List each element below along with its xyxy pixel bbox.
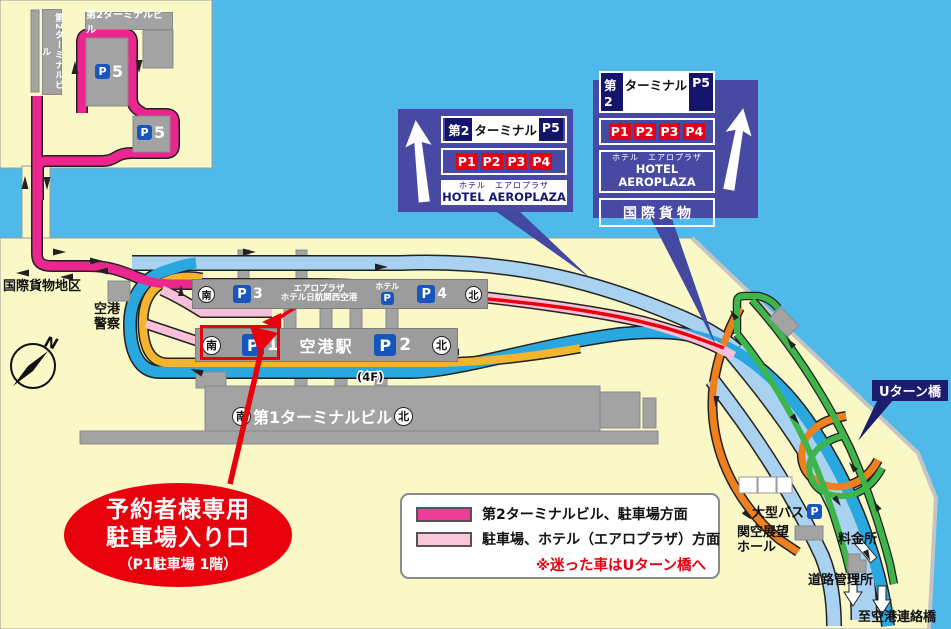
north-badge: 北 [432,336,451,355]
p4-number: 4 [437,286,447,302]
sign-p2: P2 [634,123,656,140]
p-icon: P [417,285,435,303]
floor-4f-label: (4F) [357,370,383,384]
airport-access-map: N (4F) 第2ターミナルビル 第2ターミナルビル P 5 P 5 第2 ター… [0,0,951,629]
p-icon: P [374,334,396,356]
legend-label-terminal2: 第2ターミナルビル、駐車場方面 [482,504,688,524]
sign-row-parkings: P1 P2 P3 P4 [441,148,567,175]
p5-upper-badge: P 5 [95,62,123,81]
reserved-line3: （P1駐車場 1階） [119,554,238,574]
airport-station-label: 空港駅 [299,333,353,357]
sign-row-parkings: P1 P2 P3 P4 [599,118,715,145]
sign-dai2: 第2 [601,73,623,111]
viewing-hall-building [795,526,823,540]
terminal2-bar [31,10,39,92]
sign-p4: P4 [683,123,705,140]
sign-p5: P5 [539,118,563,141]
sign-p2: P2 [481,153,503,170]
large-bus-label-row: 大型バス P [752,502,822,521]
sign-hotel-aeroplaza: ホテル エアロプラザ HOTEL AEROPLAZA [599,150,715,192]
toll-gate-label: 料金所 [838,533,877,548]
sign-p1: P1 [456,153,478,170]
p2-number: 2 [399,335,411,355]
to-access-bridge-label: 至空港連絡橋 [858,611,936,626]
south-badge: 南 [198,286,215,303]
airport-police-building [108,281,130,301]
terminal2-building-label: 第2ターミナルビル [85,12,173,30]
p1-entrance-highlight [200,325,280,360]
uturn-bridge-label: Uターン橋 [872,380,948,401]
terminal2-vertical-label: 第2ターミナルビル [42,9,62,95]
sign-terminal: ターミナル [472,118,539,141]
sign-hotel-en: HOTEL AEROPLAZA [602,163,712,188]
sign-p3: P3 [659,123,681,140]
reserved-parking-callout: 予約者様専用 駐車場入り口 （P1駐車場 1階） [64,483,292,587]
up-arrow-icon [712,97,761,201]
viewing-hall-line1: 関空展望 [737,526,789,541]
legend-swatch-magenta [416,507,472,522]
viewing-hall-line2: ホール [737,541,789,556]
reserved-line1: 予約者様専用 [106,496,250,524]
terminal1-wing [80,431,658,444]
intl-cargo-area-label: 国際貨物地区 [3,280,81,295]
airport-police-label: 空港 警察 [94,303,120,333]
reserved-line2: 駐車場入り口 [106,524,250,552]
sign-cargo-direction: 第2 ターミナル P5 P1 P2 P3 P4 ホテル エアロプラザ HOTEL… [593,80,758,218]
sign-terminal: ターミナル [623,73,690,111]
sign-p3: P3 [506,153,528,170]
north-badge: 北 [394,407,413,426]
p5-number: 5 [112,62,123,81]
sign-terminal-parking: 第2 ターミナル P5 P1 P2 P3 P4 ホテル エアロプラザ HOTEL… [398,109,573,212]
up-arrow-icon [400,116,441,205]
legend-item-parking-hotel: 駐車場、ホテル（エアロプラザ）方面 [416,529,706,549]
p-icon: P [233,285,251,303]
viewing-hall-label: 関空展望 ホール [737,526,789,556]
hotel-nikko-label: ホテル日航関西空港 [281,294,358,303]
sign-p5: P5 [689,73,713,111]
legend-item-terminal2: 第2ターミナルビル、駐車場方面 [416,504,706,524]
legend-note-uturn: ※迷った車はUターン橋へ [416,554,706,575]
sign-row-terminal: 第2 ターミナル P5 [599,71,715,113]
p-icon: P [95,64,110,79]
sign-hotel-en: HOTEL AEROPLAZA [442,191,566,204]
sign-dai2: 第2 [445,118,472,141]
road-office-label: 道路管理所 [808,574,873,589]
bus-parking-stalls [739,477,792,493]
p3-number: 3 [253,286,263,302]
p-icon: P [381,292,394,305]
terminal1-label-row: 南 第1ターミナルビル 北 [232,404,412,428]
sign-p1: P1 [609,123,631,140]
p-icon: P [137,125,152,140]
large-bus-label: 大型バス [752,502,804,521]
p5-number: 5 [154,123,165,142]
hotel-label: ホテル [375,283,399,292]
legend-label-parking-hotel: 駐車場、ホテル（エアロプラザ）方面 [482,529,720,549]
p-icon: P [807,504,822,519]
p5-lower-badge: P 5 [137,123,165,142]
north-badge: 北 [465,286,482,303]
legend-box: 第2ターミナルビル、駐車場方面 駐車場、ホテル（エアロプラザ）方面 ※迷った車は… [400,493,720,579]
sign-p4: P4 [530,153,552,170]
sign-hotel-aeroplaza: ホテル エアロプラザ HOTEL AEROPLAZA [441,180,567,205]
airport-police-line2: 警察 [94,318,120,333]
terminal1-label: 第1ターミナルビル [253,404,392,428]
south-badge: 南 [232,407,251,426]
aeroplaza-terminal-bar: 南 P 3 エアロプラザ ホテル日航関西空港 ホテル P P 4 北 [192,279,488,309]
sign-intl-cargo: 国際貨物 [599,198,715,227]
airport-police-line1: 空港 [94,303,120,318]
sign-row-terminal: 第2 ターミナル P5 [441,116,567,143]
legend-swatch-pink [416,532,472,547]
